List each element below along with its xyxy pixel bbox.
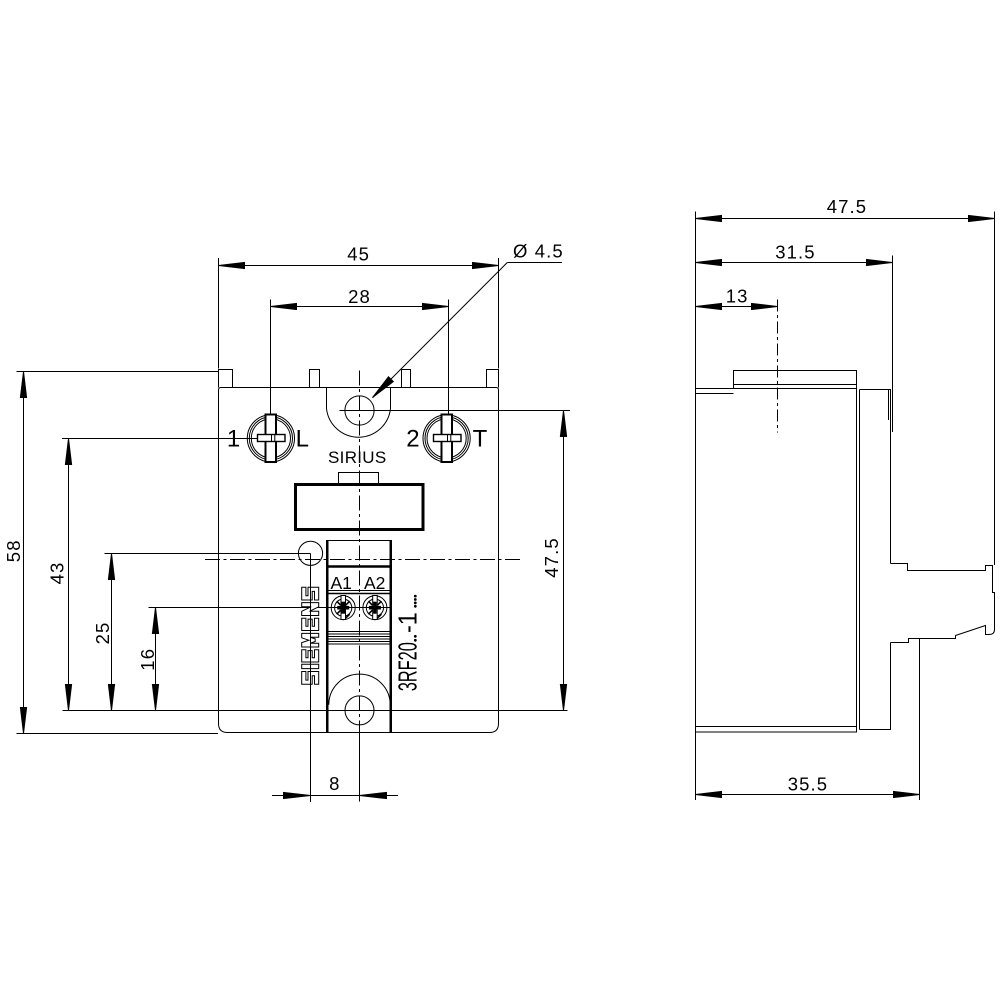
- svg-text:2: 2: [406, 425, 419, 452]
- svg-text:43: 43: [47, 562, 68, 585]
- svg-text:L: L: [296, 425, 309, 452]
- svg-text:31.5: 31.5: [775, 241, 815, 262]
- svg-text:35.5: 35.5: [788, 774, 828, 795]
- svg-text:1: 1: [227, 425, 240, 452]
- svg-text:47.5: 47.5: [541, 537, 562, 577]
- svg-text:3RF20: 3RF20: [393, 642, 423, 691]
- svg-text:28: 28: [348, 286, 371, 307]
- svg-text:13: 13: [726, 285, 749, 306]
- svg-text:45: 45: [347, 244, 370, 265]
- svg-text:25: 25: [92, 622, 113, 645]
- svg-text:A1: A1: [330, 573, 351, 593]
- svg-text:-1: -1: [394, 612, 422, 633]
- svg-text:47.5: 47.5: [827, 196, 867, 217]
- svg-text:Ø 4.5: Ø 4.5: [513, 241, 564, 262]
- svg-text:T: T: [473, 425, 488, 452]
- svg-text:8: 8: [329, 773, 340, 794]
- svg-text:SIRIUS: SIRIUS: [328, 448, 386, 467]
- svg-text:58: 58: [3, 539, 24, 562]
- svg-text:A2: A2: [364, 573, 385, 593]
- svg-text:16: 16: [137, 648, 158, 671]
